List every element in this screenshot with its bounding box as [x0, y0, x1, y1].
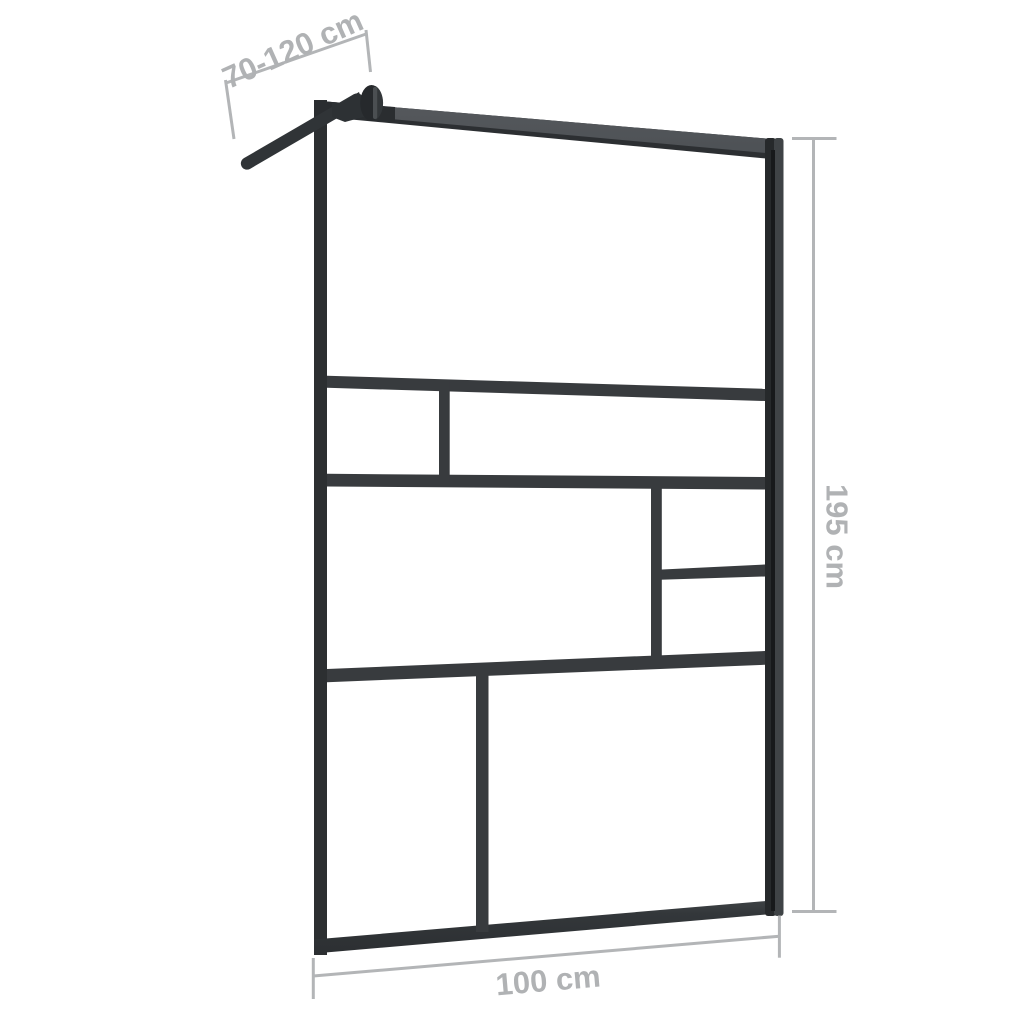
svg-text:100 cm: 100 cm: [494, 958, 602, 1002]
svg-text:195 cm: 195 cm: [820, 484, 855, 589]
svg-text:70-120 cm: 70-120 cm: [217, 3, 368, 96]
